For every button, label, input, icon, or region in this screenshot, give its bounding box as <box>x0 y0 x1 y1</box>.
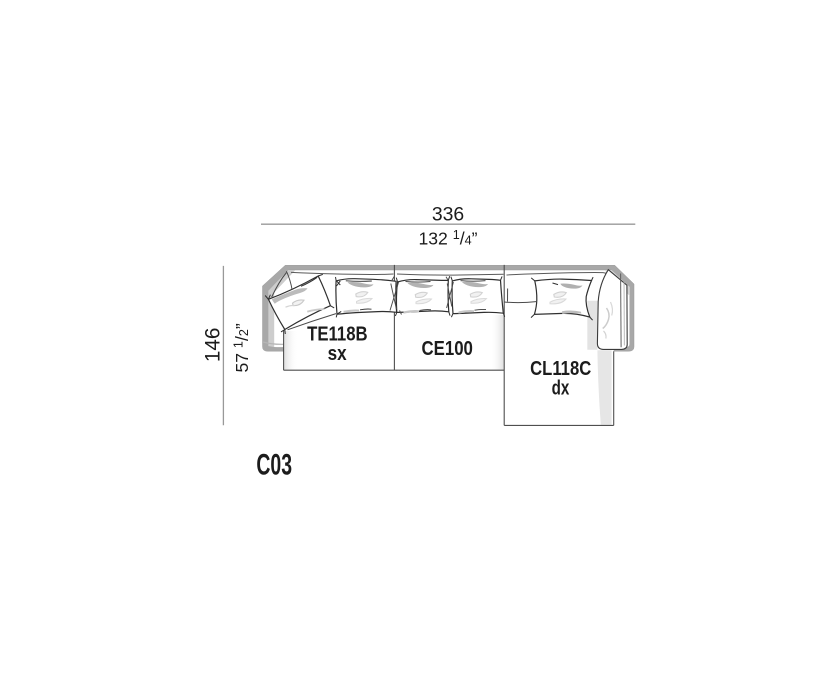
svg-text:CE100: CE100 <box>422 338 473 360</box>
svg-text:C03: C03 <box>256 448 292 481</box>
svg-text:146: 146 <box>200 328 225 363</box>
svg-text:sx: sx <box>328 343 348 365</box>
svg-text:336: 336 <box>432 204 464 226</box>
svg-text:dx: dx <box>552 378 570 400</box>
svg-text:57 1/2”: 57 1/2” <box>231 323 252 372</box>
svg-text:132 1/4”: 132 1/4” <box>418 228 477 249</box>
